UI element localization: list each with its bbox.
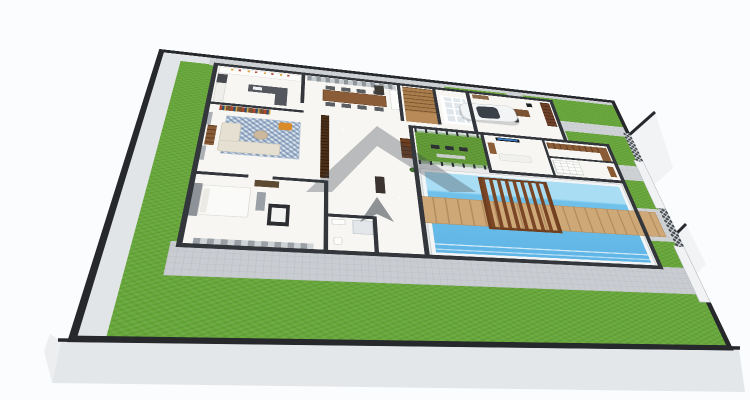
kitchen-island-leg xyxy=(274,87,288,106)
bath-shower xyxy=(352,220,373,235)
bath-sink xyxy=(332,219,346,225)
dining-cabinet xyxy=(374,85,384,95)
dining-chair xyxy=(342,103,351,108)
bedroom-bench xyxy=(255,192,266,211)
closet-shelf-white xyxy=(552,160,584,176)
driveway-lamp xyxy=(526,103,533,107)
dining-chair xyxy=(326,102,336,107)
floor-sparkle xyxy=(357,165,359,167)
living-sofa-chaise xyxy=(219,122,242,142)
bath-toilet xyxy=(333,237,342,245)
dining-chair xyxy=(374,107,383,112)
right-wall-top-edge-1 xyxy=(628,112,655,136)
courtyard-planter xyxy=(445,146,454,151)
living-armchair xyxy=(278,122,292,130)
floor-sparkle xyxy=(378,142,380,144)
west-outer-wall-face xyxy=(44,334,61,383)
living-wood-partition xyxy=(320,115,329,178)
site-plan xyxy=(64,48,736,352)
hall-sculpture xyxy=(375,176,386,193)
courtyard-planter xyxy=(459,147,468,152)
dining-chair xyxy=(357,105,366,110)
bedroom-tv-screen xyxy=(271,208,286,223)
floor-sparkle xyxy=(342,129,344,131)
floor-sparkle xyxy=(399,197,402,199)
stairs-flight xyxy=(402,87,436,114)
kitchen-fridge xyxy=(216,74,228,84)
wall xyxy=(324,180,329,254)
floorplan-3d-render xyxy=(0,0,750,400)
courtyard-planter xyxy=(431,145,440,150)
